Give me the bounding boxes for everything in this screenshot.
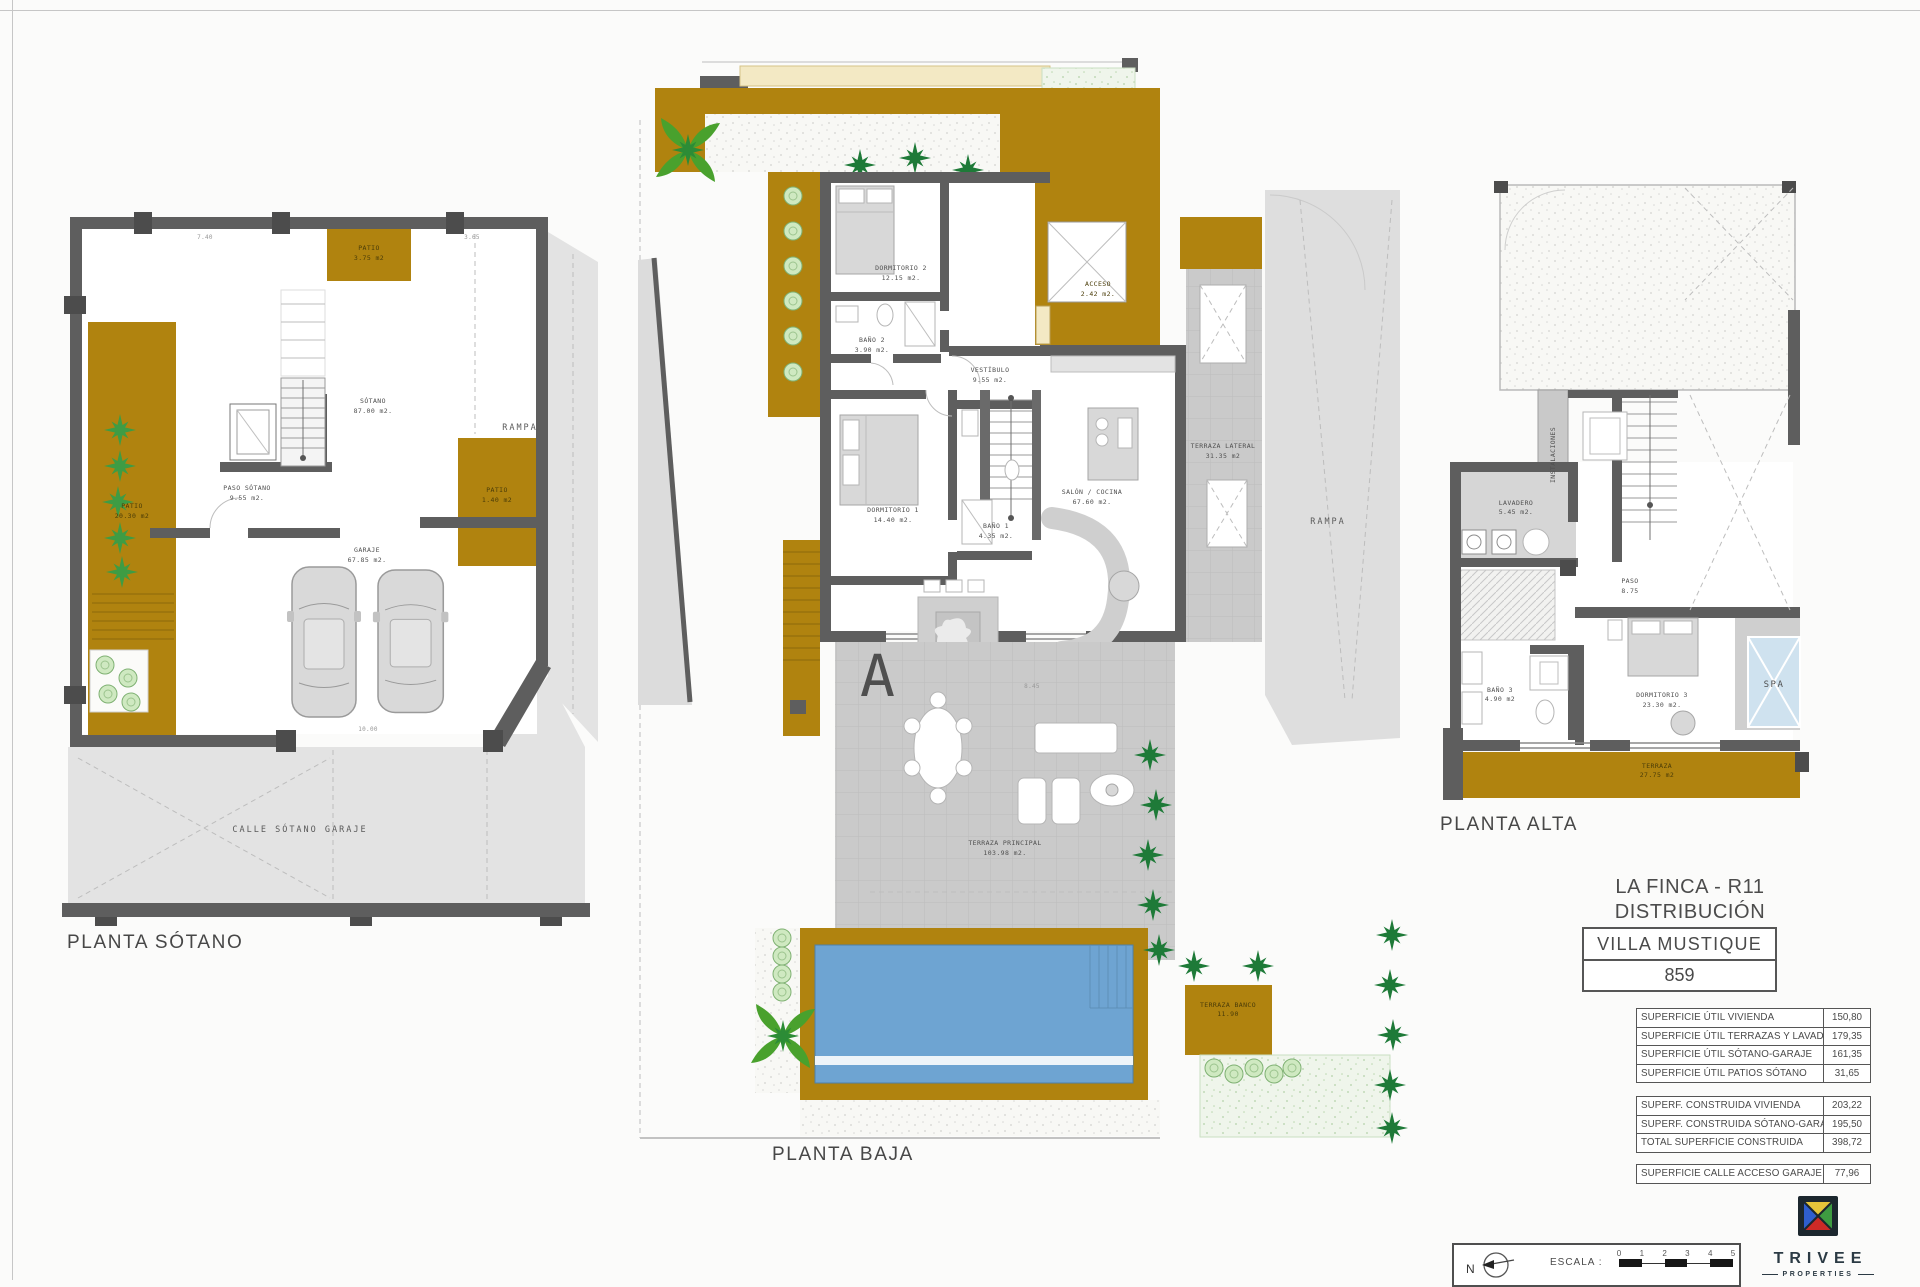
table-cell-label: SUPERF. CONSTRUIDA SÓTANO-GARAJE: [1637, 1116, 1823, 1134]
room-label: SÓTANO: [360, 396, 386, 405]
room-label: BAÑO 2: [859, 335, 885, 344]
table-cell-value: 150,80: [1823, 1009, 1870, 1027]
logo-tagline: PROPERTIES: [1752, 1271, 1884, 1278]
room-area: 8.75: [1621, 587, 1638, 595]
terraza-banco-area: [1185, 985, 1272, 1055]
north-compass-icon: [1474, 1249, 1518, 1281]
table-cell-value: 398,72: [1823, 1134, 1870, 1152]
villa-name-box: VILLA MUSTIQUE 859: [1582, 927, 1777, 992]
tick: 3: [1685, 1249, 1689, 1258]
room-label: PATIO: [486, 486, 508, 494]
table-cell-label: SUPERFICIE ÚTIL VIVIENDA: [1637, 1009, 1823, 1027]
room-label-instalaciones: INSTALACIONES: [1549, 427, 1557, 483]
room-label: PASO: [1621, 577, 1638, 585]
company-logo: TRIVEE PROPERTIES: [1752, 1196, 1884, 1278]
table-cell-value: 203,22: [1823, 1097, 1870, 1115]
bed-dorm2: [836, 186, 894, 274]
tick: 1: [1640, 1249, 1644, 1258]
room-label: DORMITORIO 2: [875, 264, 927, 272]
car-icon: [287, 567, 361, 717]
table-cell-value: 31,65: [1823, 1065, 1870, 1083]
room-label-spa: SPA: [1764, 680, 1785, 690]
baja-rampa: [1265, 190, 1400, 745]
elevator-shaft: [230, 404, 276, 460]
room-label: TERRAZA: [1642, 762, 1672, 770]
table-cell-label: SUPERFICIE CALLE ACCESO GARAJE: [1637, 1165, 1823, 1183]
table-cell-label: TOTAL SUPERFICIE CONSTRUIDA: [1637, 1134, 1823, 1152]
table-cell-value: 195,50: [1823, 1116, 1870, 1134]
room-label: BAÑO 3: [1487, 685, 1513, 694]
plan-title-alta: PLANTA ALTA: [1440, 814, 1578, 835]
table-cell-label: SUPERFICIE ÚTIL SÓTANO-GARAJE: [1637, 1046, 1823, 1064]
room-label: DORMITORIO 3: [1636, 691, 1688, 699]
alta-shower-top: [1583, 412, 1627, 460]
room-area: 4.90 m2: [1485, 695, 1515, 703]
plan-sotano: PATIO 3.75 m2 SÓTANO 87.00 m2. PASO SÓTA…: [40, 160, 620, 970]
table-superficie-util: SUPERFICIE ÚTIL VIVIENDA150,80 SUPERFICI…: [1636, 1008, 1871, 1083]
room-area: 87.00 m2.: [354, 407, 393, 415]
villa-number: 859: [1584, 961, 1775, 990]
room-label: ACCESO: [1085, 280, 1111, 288]
table-cell-label: SUPERFICIE ÚTIL TERRAZAS Y LAVADERO: [1637, 1028, 1823, 1046]
tick: 0: [1617, 1249, 1621, 1258]
room-label: SALÓN / COCINA: [1062, 487, 1122, 496]
tick: 4: [1708, 1249, 1712, 1258]
table-row: SUPERFICIE ÚTIL VIVIENDA150,80: [1637, 1009, 1870, 1027]
room-area: 2.42 m2.: [1081, 290, 1116, 298]
room-label: PATIO: [358, 244, 380, 252]
room-area: 1.40 m2: [482, 496, 512, 504]
room-area: 4.35 m2.: [979, 532, 1014, 540]
terraza-banco-zone: [1177, 918, 1410, 1145]
room-label: PATIO: [121, 502, 143, 510]
area-label-rampa: RAMPA: [502, 423, 538, 433]
plan-alta: LAVADERO 5.45 m2. INSTALACIONES PASO 8.7…: [1430, 175, 1820, 845]
room-area: 67.85 m2.: [348, 556, 387, 564]
dimension: 10.00: [358, 726, 378, 733]
room-area: 23.30 m2.: [1643, 701, 1682, 709]
table-row: SUPERF. CONSTRUIDA VIVIENDA203,22: [1637, 1097, 1870, 1115]
table-cell-label: SUPERF. CONSTRUIDA VIVIENDA: [1637, 1097, 1823, 1115]
area-label-calle: CALLE SÓTANO GARAJE: [232, 823, 367, 835]
plan-baja: A DORMITORIO 2 12.15 m2. BAÑO 2 3.90 m2.…: [620, 50, 1460, 1170]
room-area: 20.30 m2: [115, 512, 150, 520]
room-area: 103.98 m2.: [983, 849, 1026, 857]
dimension: 3.65: [464, 234, 480, 241]
room-area: 3.75 m2: [354, 254, 384, 262]
page-frame-left: [12, 0, 13, 1280]
table-cell-value: 161,35: [1823, 1046, 1870, 1064]
table-superficie-construida: SUPERF. CONSTRUIDA VIVIENDA203,22 SUPERF…: [1636, 1096, 1871, 1153]
logo-tagline-text: PROPERTIES: [1782, 1271, 1853, 1278]
bed-dorm1: [840, 415, 918, 505]
baja-building: [768, 88, 1262, 736]
table-row: SUPERFICIE ÚTIL SÓTANO-GARAJE161,35: [1637, 1045, 1870, 1064]
room-label: TERRAZA BANCO: [1200, 1001, 1256, 1009]
car-icon: [373, 570, 448, 713]
watermark-letter: A: [860, 642, 895, 710]
room-area: 9.55 m2.: [973, 376, 1008, 384]
acceso-area: [1035, 88, 1160, 345]
scale-bar-segments: [1619, 1259, 1733, 1267]
scale-box: N ESCALA : 0 1 2 3 4 5: [1452, 1243, 1741, 1287]
scale-tick-labels: 0 1 2 3 4 5: [1619, 1249, 1733, 1259]
room-area: 31.35 m2: [1206, 452, 1241, 460]
room-area: 12.15 m2.: [882, 274, 921, 282]
table-row: SUPERFICIE ÚTIL PATIOS SÓTANO31,65: [1637, 1064, 1870, 1083]
dimension: 7.40: [197, 234, 213, 241]
table-cell-label: SUPERFICIE ÚTIL PATIOS SÓTANO: [1637, 1065, 1823, 1083]
project-subtitle: DISTRIBUCIÓN: [1559, 901, 1821, 924]
room-area: 5.45 m2.: [1499, 508, 1534, 516]
room-label: DORMITORIO 1: [867, 506, 919, 514]
table-calle-acceso: SUPERFICIE CALLE ACCESO GARAJE77,96: [1636, 1164, 1871, 1184]
scale-ruler: 0 1 2 3 4 5: [1619, 1249, 1733, 1267]
room-label: LAVADERO: [1499, 499, 1534, 507]
logo-name: TRIVEE: [1752, 1250, 1884, 1268]
table-cell-value: 77,96: [1823, 1165, 1870, 1183]
room-label: PASO SÓTANO: [223, 483, 270, 492]
spa-zone: [1735, 618, 1800, 730]
lavadero-appliances: [1462, 529, 1549, 555]
area-label-rampa: RAMPA: [1310, 517, 1346, 527]
room-label: BAÑO 1: [983, 521, 1009, 530]
scale-label: ESCALA :: [1550, 1257, 1602, 1268]
room-label: TERRAZA LATERAL: [1191, 442, 1256, 450]
table-row: SUPERF. CONSTRUIDA SÓTANO-GARAJE195,50: [1637, 1115, 1870, 1134]
room-area: 9.55 m2.: [230, 494, 265, 502]
room-label: TERRAZA PRINCIPAL: [968, 839, 1041, 847]
table-row: SUPERFICIE CALLE ACCESO GARAJE77,96: [1637, 1165, 1870, 1183]
room-area: 11.90: [1217, 1010, 1239, 1018]
sotano-building: [64, 212, 551, 752]
room-label: VESTÍBULO: [971, 365, 1010, 374]
planter-box: [90, 650, 148, 712]
table-cell-value: 179,35: [1823, 1028, 1870, 1046]
logo-pinwheel-icon: [1798, 1196, 1838, 1236]
room-area: 3.90 m2.: [855, 346, 890, 354]
alta-roof-terrace: [1494, 181, 1796, 390]
tick: 5: [1731, 1249, 1735, 1258]
room-area: 67.60 m2.: [1073, 498, 1112, 506]
pool-zone: [751, 928, 1160, 1136]
room-area: 27.75 m2: [1640, 771, 1675, 779]
dimension: 8.45: [1024, 683, 1040, 690]
table-row: SUPERFICIE ÚTIL TERRAZAS Y LAVADERO179,3…: [1637, 1027, 1870, 1046]
plan-title-sotano: PLANTA SÓTANO: [67, 931, 243, 953]
terraza-alta-area: [1463, 752, 1800, 798]
project-title: LA FINCA - R11: [1559, 876, 1821, 899]
page-frame-top: [0, 10, 1920, 11]
plan-title-baja: PLANTA BAJA: [772, 1144, 914, 1165]
room-label: GARAJE: [354, 546, 380, 554]
room-area: 14.40 m2.: [874, 516, 913, 524]
tick: 2: [1662, 1249, 1666, 1258]
table-row: TOTAL SUPERFICIE CONSTRUIDA398,72: [1637, 1133, 1870, 1152]
villa-name: VILLA MUSTIQUE: [1584, 929, 1775, 961]
